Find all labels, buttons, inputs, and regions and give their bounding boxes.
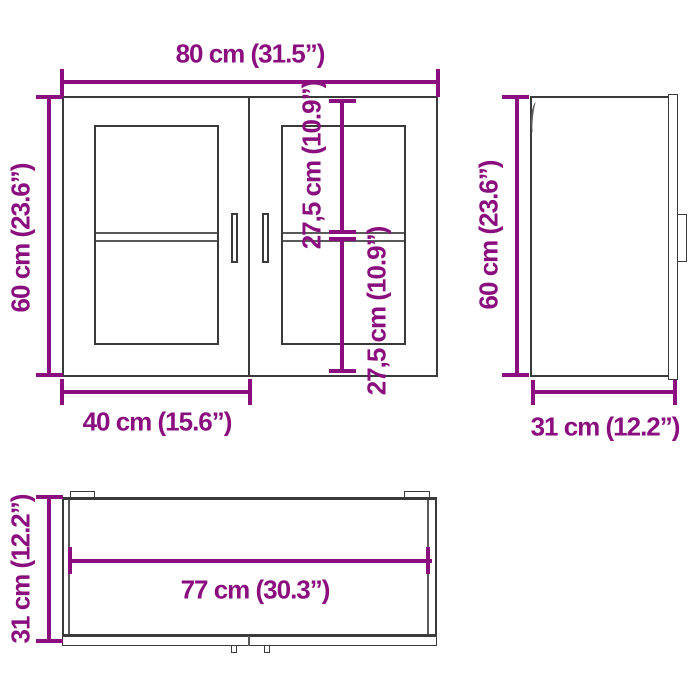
dim-tick [60,379,64,405]
front-left-glass-panel [94,125,219,345]
dim-tick [36,495,63,499]
dim-side-depth-label: 31 cm (12.2”) [531,412,680,443]
bottom-handle-knob-left [231,645,237,653]
side-handle [677,214,687,262]
dim-upper-section-label: 27,5 cm (10.9”) [297,81,328,250]
dim-tick [673,380,677,405]
dim-tick [502,95,529,99]
dim-tick [426,547,430,574]
dim-tick [248,379,252,405]
dim-side-depth-line [531,390,677,394]
shelf-line [96,240,217,242]
dim-lower-section-label: 27,5 cm (10.9”) [362,227,393,396]
dim-tick [60,69,64,97]
dim-tick [36,639,63,643]
dim-front-height-label: 60 cm (23.6”) [6,164,37,313]
right-door-handle [262,213,269,263]
dim-bottom-depth-label: 31 cm (12.2”) [6,495,37,644]
bottom-handle-knob-right [264,645,270,653]
dim-tick [531,380,535,405]
dim-tick [436,69,440,97]
dim-side-height-line [515,97,519,376]
dim-tick [36,95,63,99]
dim-front-height-line [47,97,51,376]
dim-front-width-line [60,80,440,84]
dim-door-width-label: 40 cm (15.6”) [83,407,232,438]
bottom-door-gap [248,636,250,646]
mounting-plate-right [404,491,430,498]
dim-tick [329,369,356,373]
dim-tick [329,237,356,241]
shelf-line [96,232,217,234]
dim-front-width-label: 80 cm (31.5”) [176,39,325,70]
dim-lower-section-line [340,238,344,373]
dim-tick [36,373,63,377]
dim-upper-section-line [340,100,344,234]
bottom-body [62,497,437,637]
dim-bottom-depth-line [47,497,51,643]
dim-door-width-line [60,390,252,394]
dim-tick [329,99,356,103]
side-body [530,96,670,377]
dim-inner-width-line [68,559,432,563]
dim-inner-width-label: 77 cm (30.3”) [181,575,330,606]
dim-tick [329,230,356,234]
dim-tick [502,373,529,377]
dim-side-height-label: 60 cm (23.6”) [474,161,505,310]
left-door-handle [231,213,238,263]
dimension-diagram: 80 cm (31.5”) 60 cm (23.6”) 40 cm (15.6”… [0,0,700,700]
dim-tick [68,547,72,574]
mounting-plate-left [70,491,95,498]
